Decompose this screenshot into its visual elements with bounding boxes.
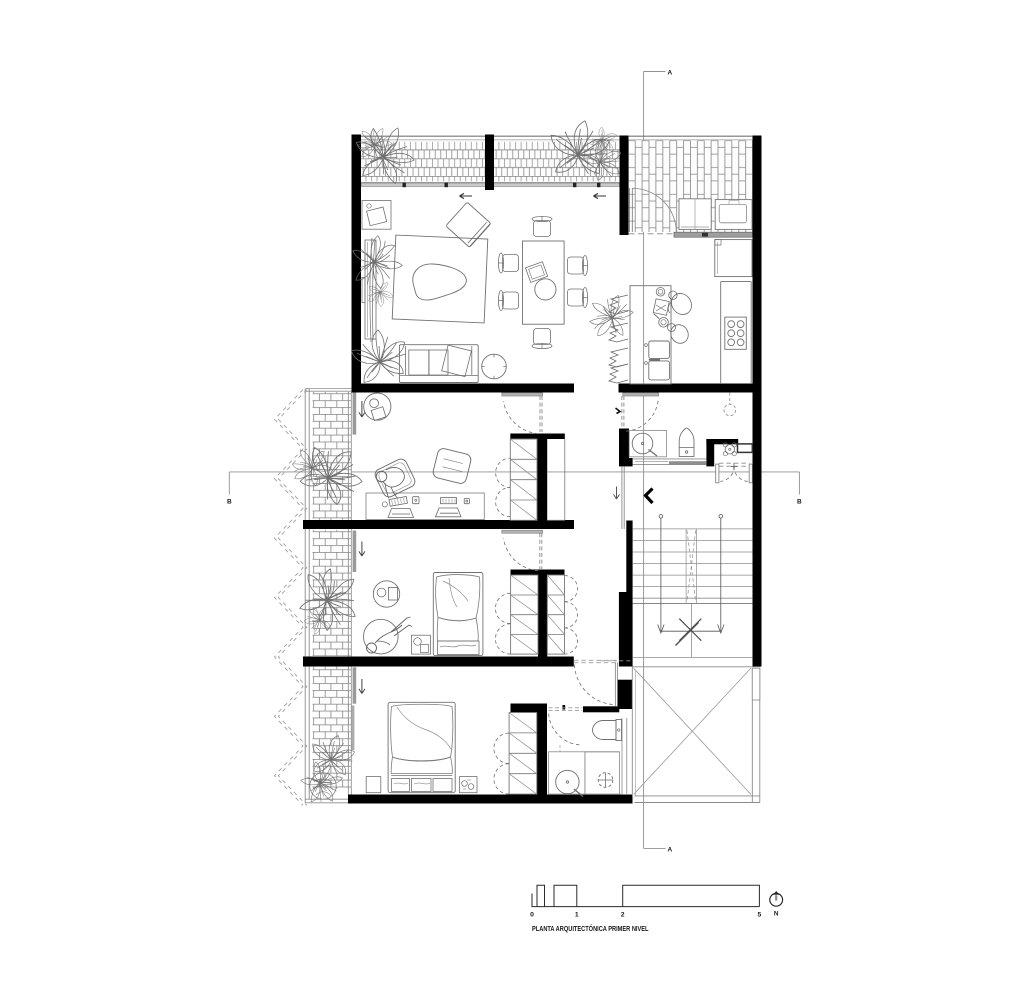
- svg-text:5: 5: [758, 912, 762, 919]
- svg-text:A: A: [668, 70, 673, 77]
- svg-text:2: 2: [621, 912, 625, 919]
- svg-text:PLANTA ARQUITECTÓNICA PRIMER N: PLANTA ARQUITECTÓNICA PRIMER NIVEL: [532, 924, 649, 933]
- svg-text:0: 0: [530, 912, 534, 919]
- svg-text:N: N: [774, 910, 779, 917]
- svg-text:A: A: [668, 847, 673, 854]
- svg-text:B: B: [227, 499, 232, 506]
- svg-text:1: 1: [575, 912, 579, 919]
- svg-text:B: B: [797, 499, 802, 506]
